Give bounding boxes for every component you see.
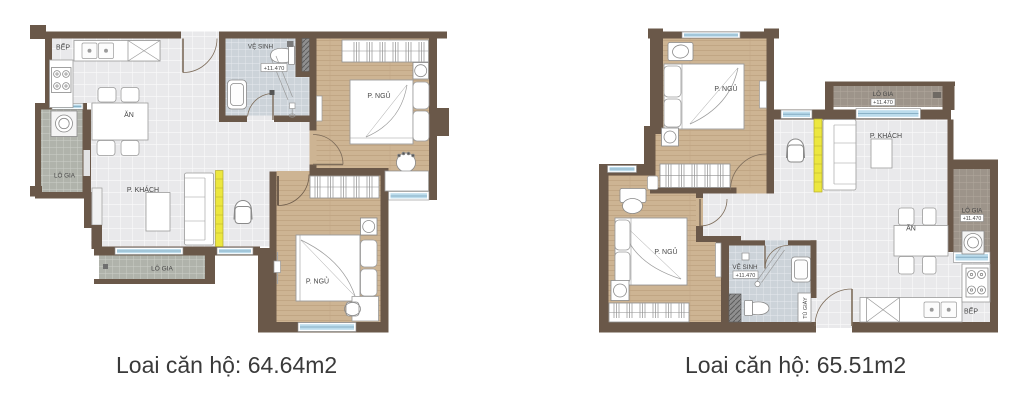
svg-text:+11.470: +11.470 xyxy=(963,216,982,222)
svg-text:P. NGỦ: P. NGỦ xyxy=(306,277,329,286)
svg-text:LÔ GIA: LÔ GIA xyxy=(962,208,984,215)
svg-text:TỦ GIÀY: TỦ GIÀY xyxy=(802,297,809,319)
svg-text:P. NGỦ: P. NGỦ xyxy=(654,247,677,256)
svg-text:+11.470: +11.470 xyxy=(264,66,285,72)
svg-text:VỆ SINH: VỆ SINH xyxy=(732,262,758,271)
svg-text:VỆ SINH: VỆ SINH xyxy=(248,42,274,51)
svg-text:ĂN: ĂN xyxy=(124,110,134,119)
svg-text:P. KHÁCH: P. KHÁCH xyxy=(870,131,902,140)
svg-text:P. NGỦ: P. NGỦ xyxy=(367,91,390,100)
svg-text:LÔ GIA: LÔ GIA xyxy=(873,91,895,98)
svg-text:+11.470: +11.470 xyxy=(736,273,756,279)
svg-text:P. KHÁCH: P. KHÁCH xyxy=(127,185,159,194)
svg-text:ĂN: ĂN xyxy=(906,224,916,233)
svg-text:LÔ GIA: LÔ GIA xyxy=(54,171,76,180)
svg-text:+11.470: +11.470 xyxy=(873,100,893,106)
svg-text:P. NGỦ: P. NGỦ xyxy=(714,84,737,93)
svg-text:LÔ GIA: LÔ GIA xyxy=(151,264,173,273)
